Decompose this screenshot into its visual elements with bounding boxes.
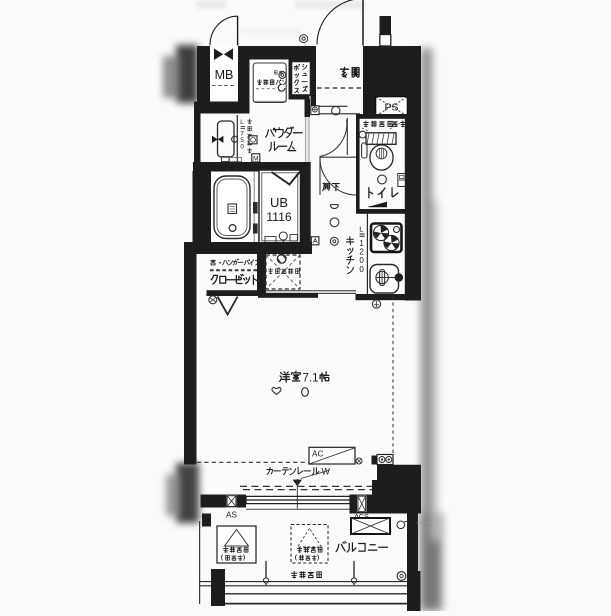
svg-text:L: L [359,225,363,234]
svg-text:0: 0 [240,143,244,150]
svg-text:7.1: 7.1 [303,372,319,384]
svg-text:UB: UB [270,195,288,210]
svg-text:0: 0 [359,265,364,274]
svg-text:AS: AS [226,511,237,520]
svg-text:M: M [253,156,258,163]
svg-text:1116: 1116 [266,210,292,224]
svg-text:MB: MB [215,68,234,82]
svg-text:PS: PS [384,102,398,114]
svg-text:AC: AC [312,450,323,459]
